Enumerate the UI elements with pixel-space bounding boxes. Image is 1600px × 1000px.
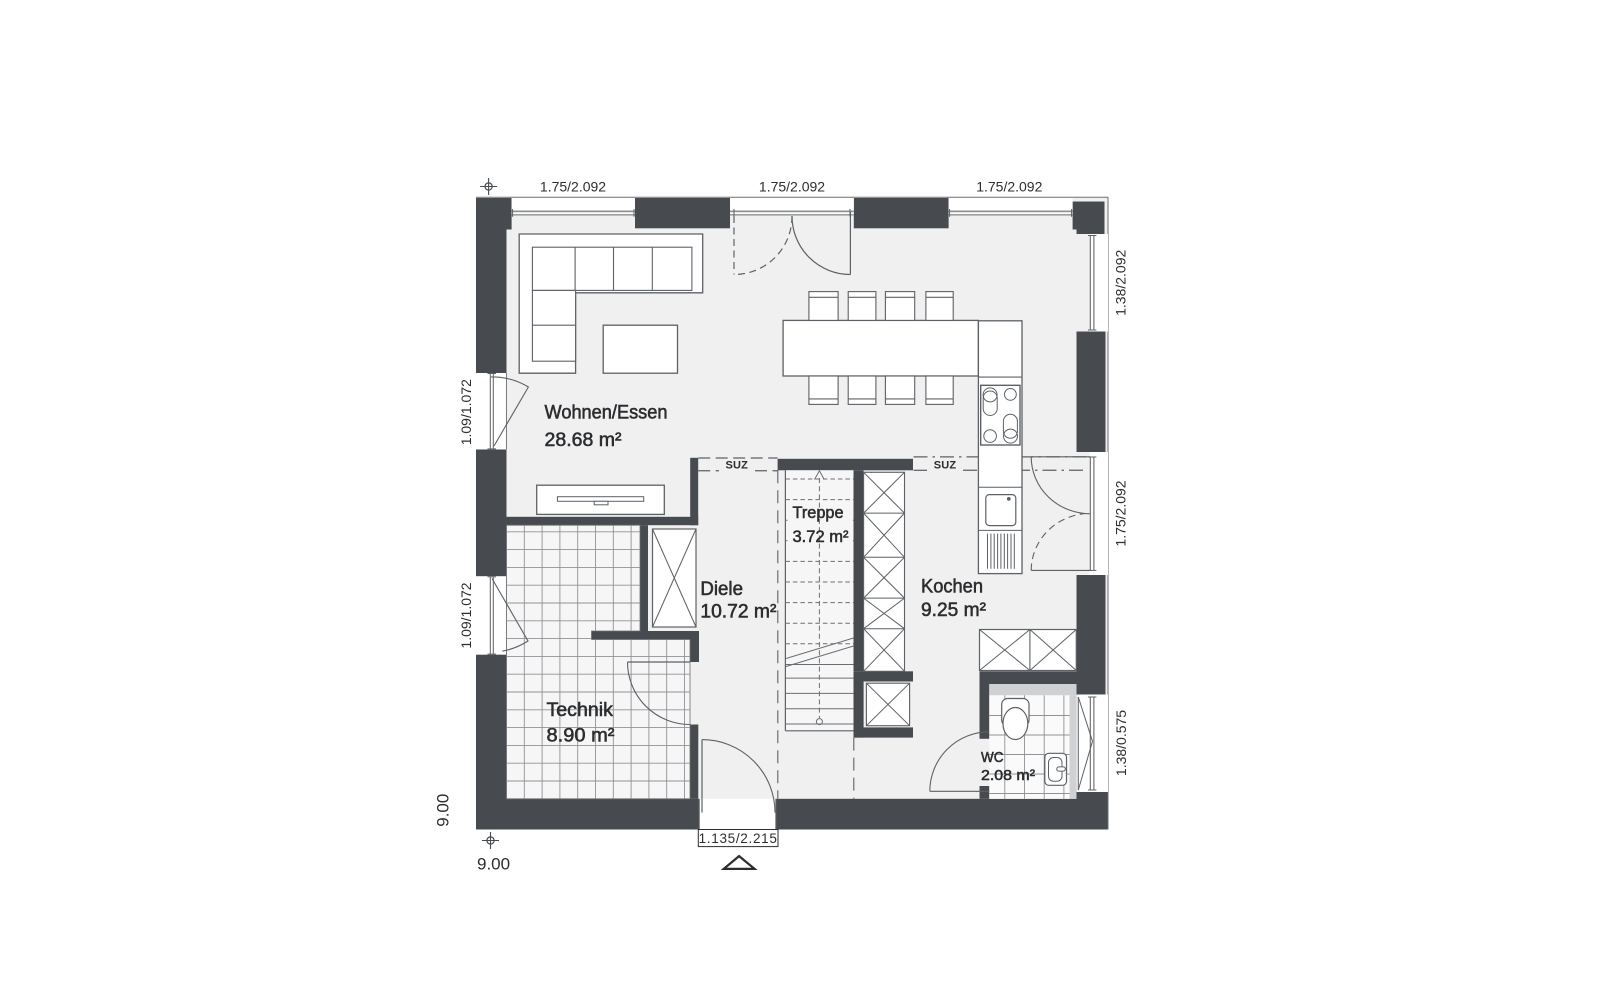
svg-text:SUZ: SUZ bbox=[725, 460, 748, 472]
svg-text:1.75/2.092: 1.75/2.092 bbox=[976, 178, 1042, 194]
svg-text:1.09/1.072: 1.09/1.072 bbox=[458, 582, 474, 648]
svg-text:8.90 m²: 8.90 m² bbox=[547, 725, 615, 746]
svg-text:1.38/0.575: 1.38/0.575 bbox=[1113, 710, 1129, 776]
svg-text:1.75/2.092: 1.75/2.092 bbox=[1113, 480, 1129, 546]
svg-text:9.25 m²: 9.25 m² bbox=[921, 600, 986, 621]
svg-text:1.38/2.092: 1.38/2.092 bbox=[1113, 250, 1129, 316]
svg-text:Treppe: Treppe bbox=[793, 504, 844, 522]
svg-text:9.00: 9.00 bbox=[477, 855, 510, 874]
svg-text:2.08 m²: 2.08 m² bbox=[981, 767, 1035, 784]
svg-text:1.75/2.092: 1.75/2.092 bbox=[759, 178, 825, 194]
svg-text:1.75/2.092: 1.75/2.092 bbox=[540, 178, 606, 194]
svg-text:3.72 m²: 3.72 m² bbox=[793, 528, 850, 546]
svg-text:SUZ: SUZ bbox=[934, 460, 957, 472]
svg-text:WC: WC bbox=[981, 749, 1004, 766]
svg-text:1.09/1.072: 1.09/1.072 bbox=[458, 379, 474, 445]
svg-text:9.00: 9.00 bbox=[434, 794, 453, 827]
svg-text:28.68 m²: 28.68 m² bbox=[545, 430, 622, 451]
svg-text:1.135/2.215: 1.135/2.215 bbox=[699, 831, 778, 846]
svg-text:Wohnen/Essen: Wohnen/Essen bbox=[545, 403, 668, 424]
svg-text:Diele: Diele bbox=[700, 579, 743, 600]
svg-text:Technik: Technik bbox=[547, 700, 614, 721]
svg-text:10.72 m²: 10.72 m² bbox=[700, 601, 776, 622]
svg-text:Kochen: Kochen bbox=[921, 577, 983, 598]
